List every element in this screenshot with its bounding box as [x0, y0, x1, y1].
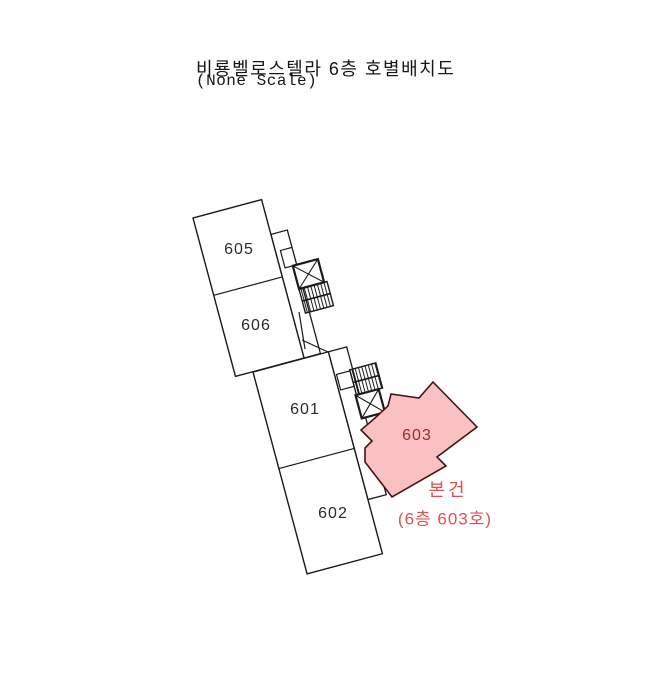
upper-wing [193, 189, 345, 377]
room-label-606: 606 [241, 317, 271, 335]
room-label-605: 605 [224, 241, 254, 259]
floor-plan-drawing [0, 0, 662, 700]
room-label-601: 601 [290, 401, 320, 419]
room-label-603: 603 [402, 427, 432, 445]
subject-annotation: 본건 [428, 476, 467, 502]
room-label-602: 602 [318, 505, 348, 523]
subject-annotation-detail: (6층 603호) [398, 505, 492, 530]
page-subtitle: (None Scale) [196, 72, 317, 90]
floor-plan-page: 비룡벨로스텔라 6층 호별배치도 (None Scale) 605 606 60… [0, 0, 662, 700]
